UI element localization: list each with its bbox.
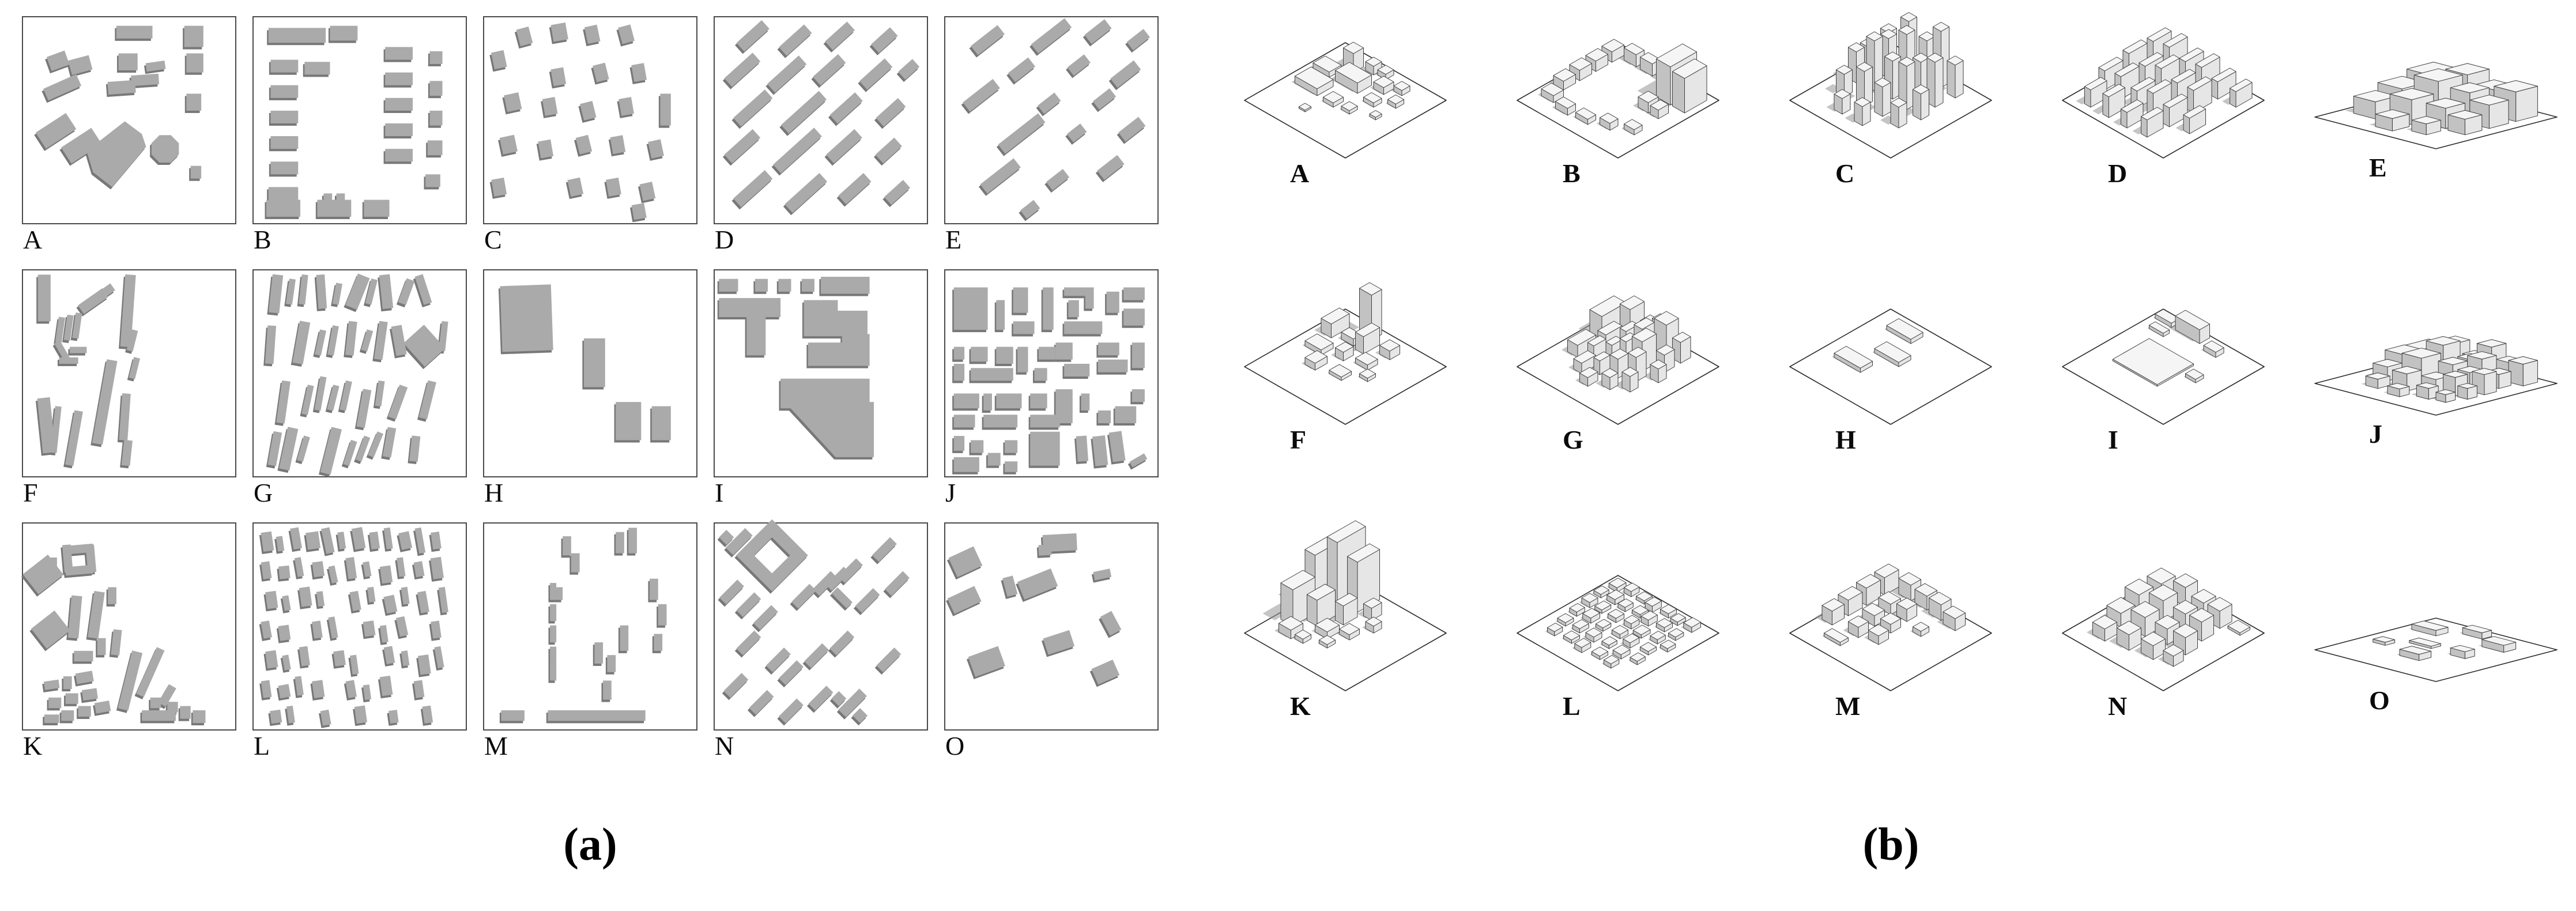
footprint-canvas-J <box>945 270 1157 476</box>
footprint-box-N <box>714 522 928 731</box>
caption-panel-b: (b) <box>1209 819 2573 871</box>
axon-tile-I: I <box>2027 271 2300 537</box>
footprint-tile-L: L <box>252 522 467 776</box>
footprint-box-I <box>714 269 928 477</box>
tile-label-K: K <box>1290 691 1311 721</box>
tile-label-G: G <box>254 479 467 508</box>
axon-canvas-G: G <box>1482 271 1755 537</box>
footprint-box-D <box>714 16 928 224</box>
tile-label-I: I <box>2108 425 2118 454</box>
axon-tile-C: C <box>1755 5 2027 271</box>
axon-canvas-K: K <box>1209 537 1482 804</box>
footprint-box-O <box>944 522 1159 731</box>
axon-tile-D: D <box>2027 5 2300 271</box>
caption-panel-a: (a) <box>22 819 1159 871</box>
axon-tile-G: G <box>1482 271 1755 537</box>
tile-label-K: K <box>23 732 236 761</box>
footprint-tile-D: D <box>714 16 928 269</box>
axon-tile-N: N <box>2027 537 2300 804</box>
tile-label-C: C <box>484 225 697 255</box>
tile-label-O: O <box>945 732 1159 761</box>
axon-canvas-H: H <box>1755 271 2027 537</box>
axon-tile-F: F <box>1209 271 1482 537</box>
tile-label-E: E <box>2369 153 2387 182</box>
tile-label-C: C <box>1835 159 1854 188</box>
tile-label-G: G <box>1563 425 1583 454</box>
footprint-tile-G: G <box>252 269 467 522</box>
tile-label-F: F <box>1290 425 1306 454</box>
footprint-box-H <box>483 269 697 477</box>
figure-urban-morphology: ABCDEFGHIJKLMNO ABCDEFGHIJKLMNO (a) (b) <box>0 0 2576 911</box>
tile-label-J: J <box>2369 419 2382 449</box>
footprint-tile-I: I <box>714 269 928 522</box>
footprint-canvas-M <box>484 524 696 729</box>
footprint-box-G <box>252 269 467 477</box>
footprint-canvas-L <box>254 524 466 729</box>
axon-canvas-E: E <box>2300 5 2573 271</box>
axon-canvas-A: A <box>1209 5 1482 271</box>
panel-b-axonometric-grid: ABCDEFGHIJKLMNO <box>1209 5 2573 804</box>
footprint-tile-C: C <box>483 16 697 269</box>
footprint-box-C <box>483 16 697 224</box>
footprint-canvas-B <box>254 17 466 223</box>
axon-tile-J: J <box>2300 271 2573 537</box>
axon-canvas-N: N <box>2027 537 2300 804</box>
axon-tile-L: L <box>1482 537 1755 804</box>
axon-tile-K: K <box>1209 537 1482 804</box>
footprint-tile-A: A <box>22 16 236 269</box>
tile-label-A: A <box>23 225 236 255</box>
tile-label-N: N <box>2108 691 2127 721</box>
footprint-box-F <box>22 269 236 477</box>
tile-label-I: I <box>715 479 928 508</box>
axon-canvas-M: M <box>1755 537 2027 804</box>
tile-label-D: D <box>2108 159 2127 188</box>
footprint-canvas-N <box>715 524 927 729</box>
axon-canvas-J: J <box>2300 271 2573 537</box>
footprint-canvas-C <box>484 17 696 223</box>
axon-canvas-O: O <box>2300 537 2573 804</box>
footprint-canvas-E <box>945 17 1157 223</box>
footprint-tile-M: M <box>483 522 697 776</box>
footprint-box-J <box>944 269 1159 477</box>
axon-tile-E: E <box>2300 5 2573 271</box>
footprint-canvas-D <box>715 17 927 223</box>
tile-label-F: F <box>23 479 236 508</box>
footprint-box-L <box>252 522 467 731</box>
footprint-tile-K: K <box>22 522 236 776</box>
footprint-box-K <box>22 522 236 731</box>
footprint-canvas-A <box>23 17 235 223</box>
axon-canvas-C: C <box>1755 5 2027 271</box>
axon-tile-O: O <box>2300 537 2573 804</box>
footprint-canvas-H <box>484 270 696 476</box>
tile-label-B: B <box>254 225 467 255</box>
tile-label-M: M <box>484 732 697 761</box>
axon-canvas-D: D <box>2027 5 2300 271</box>
tile-label-O: O <box>2369 686 2390 715</box>
axon-tile-M: M <box>1755 537 2027 804</box>
axon-canvas-I: I <box>2027 271 2300 537</box>
axon-tile-B: B <box>1482 5 1755 271</box>
footprint-box-B <box>252 16 467 224</box>
tile-label-B: B <box>1563 159 1581 188</box>
axon-canvas-L: L <box>1482 537 1755 804</box>
tile-label-H: H <box>1835 425 1856 454</box>
axon-canvas-B: B <box>1482 5 1755 271</box>
footprint-tile-F: F <box>22 269 236 522</box>
tile-label-M: M <box>1835 691 1860 721</box>
tile-label-N: N <box>715 732 928 761</box>
tile-label-D: D <box>715 225 928 255</box>
footprint-tile-J: J <box>944 269 1159 522</box>
tile-label-H: H <box>484 479 697 508</box>
footprint-canvas-K <box>23 524 235 729</box>
footprint-canvas-I <box>715 270 927 476</box>
footprint-tile-E: E <box>944 16 1159 269</box>
tile-label-L: L <box>1563 691 1581 721</box>
axon-canvas-F: F <box>1209 271 1482 537</box>
tile-label-J: J <box>945 479 1159 508</box>
footprint-tile-H: H <box>483 269 697 522</box>
axon-tile-H: H <box>1755 271 2027 537</box>
footprint-box-M <box>483 522 697 731</box>
footprint-tile-O: O <box>944 522 1159 776</box>
tile-label-A: A <box>1290 159 1309 188</box>
footprint-tile-N: N <box>714 522 928 776</box>
axon-tile-A: A <box>1209 5 1482 271</box>
tile-label-L: L <box>254 732 467 761</box>
panel-a-footprint-grid: ABCDEFGHIJKLMNO <box>22 16 1159 776</box>
footprint-canvas-G <box>254 270 466 476</box>
footprint-tile-B: B <box>252 16 467 269</box>
footprint-box-A <box>22 16 236 224</box>
footprint-box-E <box>944 16 1159 224</box>
footprint-canvas-O <box>945 524 1157 729</box>
footprint-canvas-F <box>23 270 235 476</box>
tile-label-E: E <box>945 225 1159 255</box>
